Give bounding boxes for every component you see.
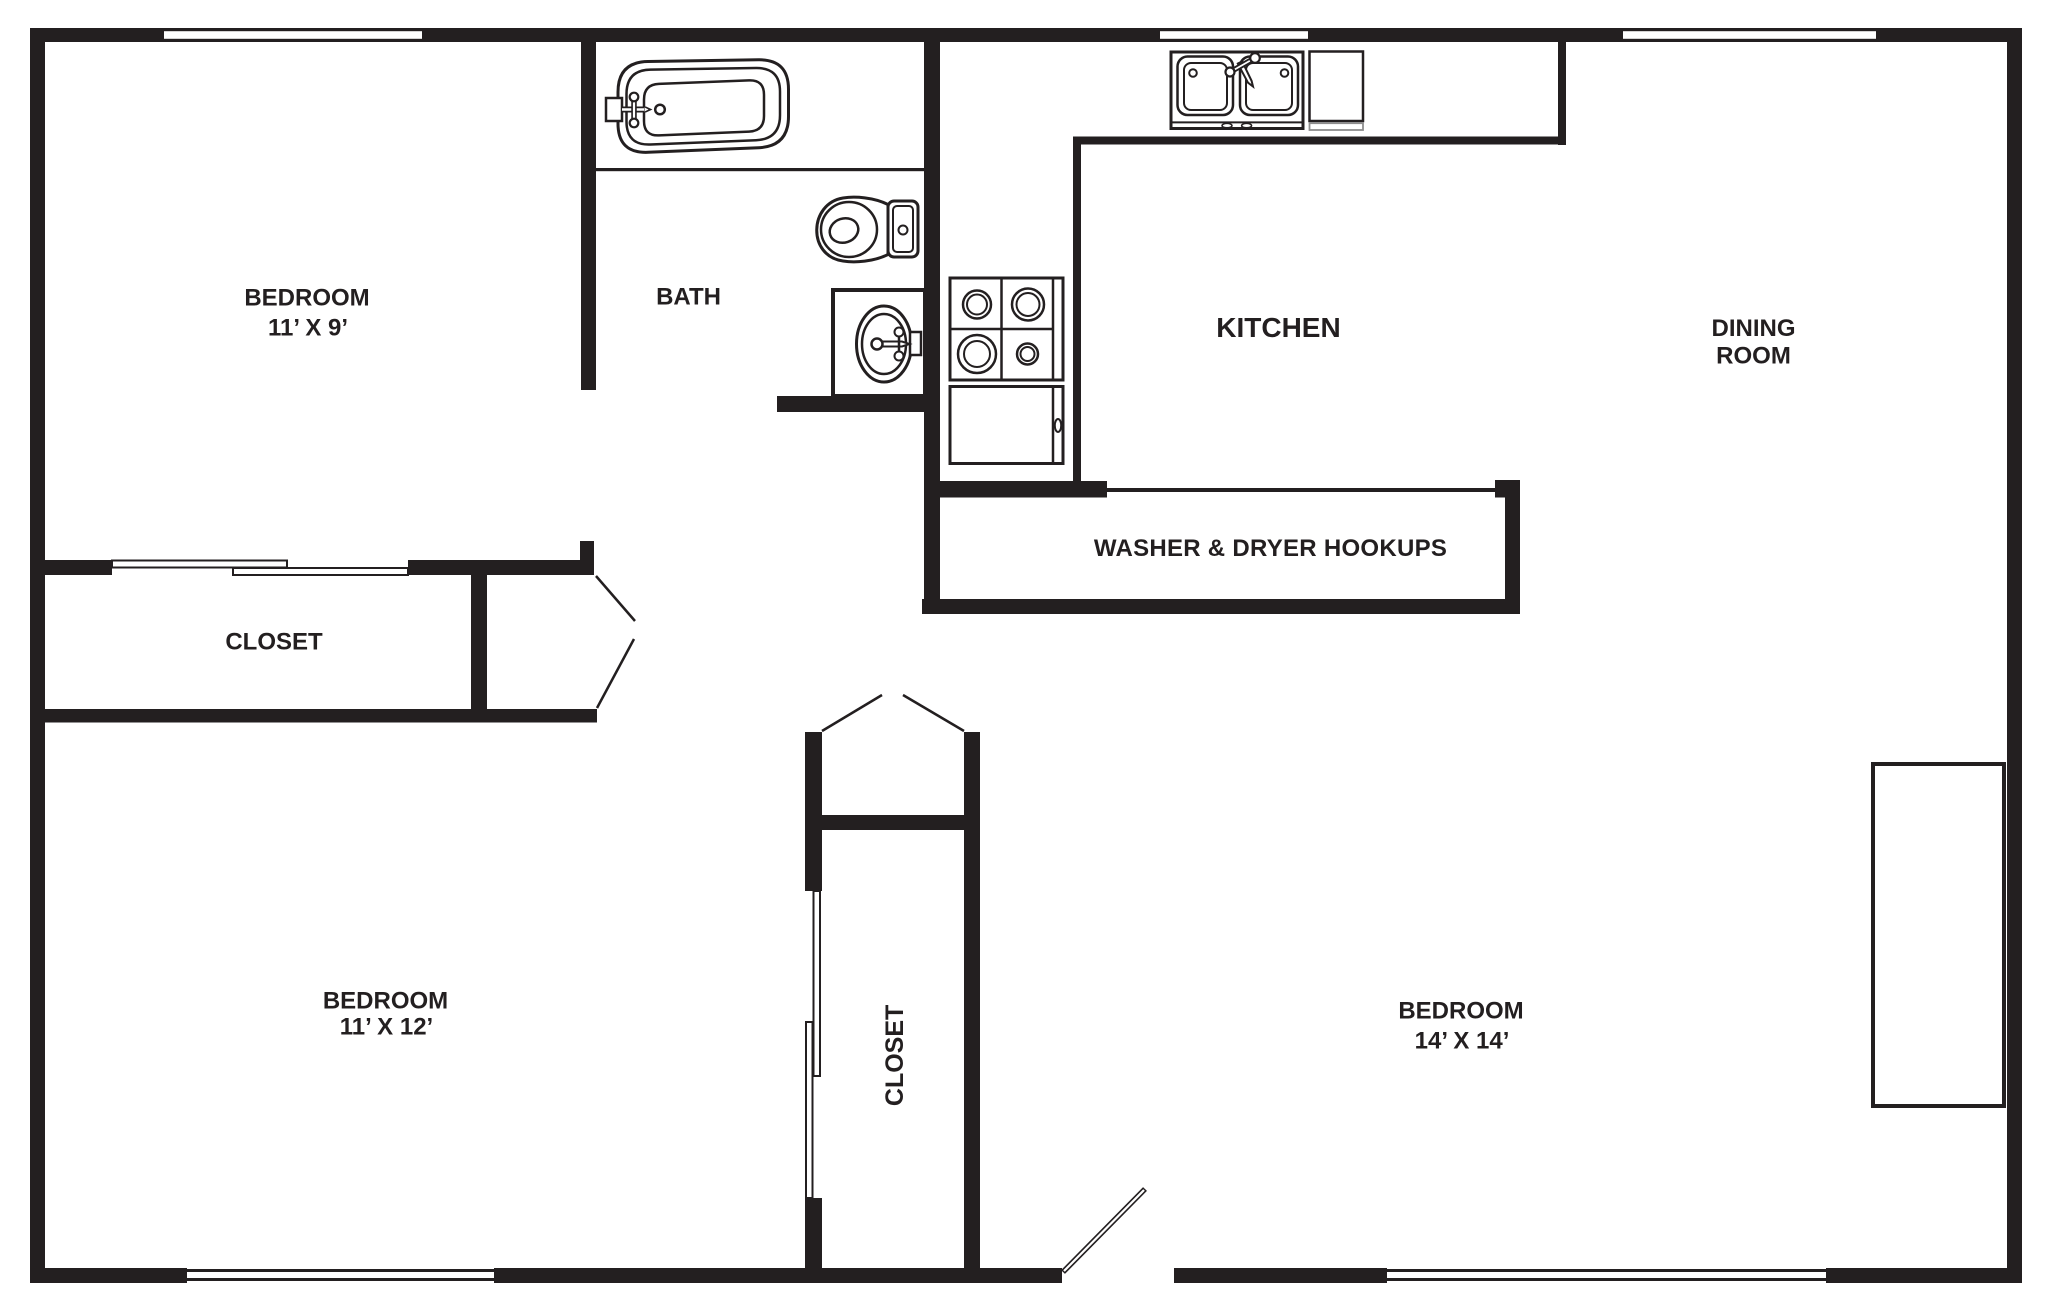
svg-text:BEDROOM: BEDROOM bbox=[244, 285, 369, 312]
svg-text:11’ X 12’: 11’ X 12’ bbox=[340, 1014, 433, 1041]
svg-text:CLOSET: CLOSET bbox=[881, 1005, 909, 1106]
svg-text:BEDROOM: BEDROOM bbox=[323, 988, 448, 1015]
svg-text:CLOSET: CLOSET bbox=[225, 629, 323, 656]
svg-text:ROOM: ROOM bbox=[1716, 343, 1791, 370]
svg-text:11’ X 9’: 11’ X 9’ bbox=[268, 315, 348, 342]
svg-text:BEDROOM: BEDROOM bbox=[1398, 998, 1523, 1025]
svg-text:WASHER & DRYER HOOKUPS: WASHER & DRYER HOOKUPS bbox=[1094, 535, 1447, 562]
svg-text:DINING: DINING bbox=[1712, 315, 1796, 342]
svg-text:14’ X 14’: 14’ X 14’ bbox=[1415, 1028, 1510, 1055]
svg-text:BATH: BATH bbox=[656, 284, 721, 311]
svg-text:KITCHEN: KITCHEN bbox=[1216, 312, 1340, 343]
